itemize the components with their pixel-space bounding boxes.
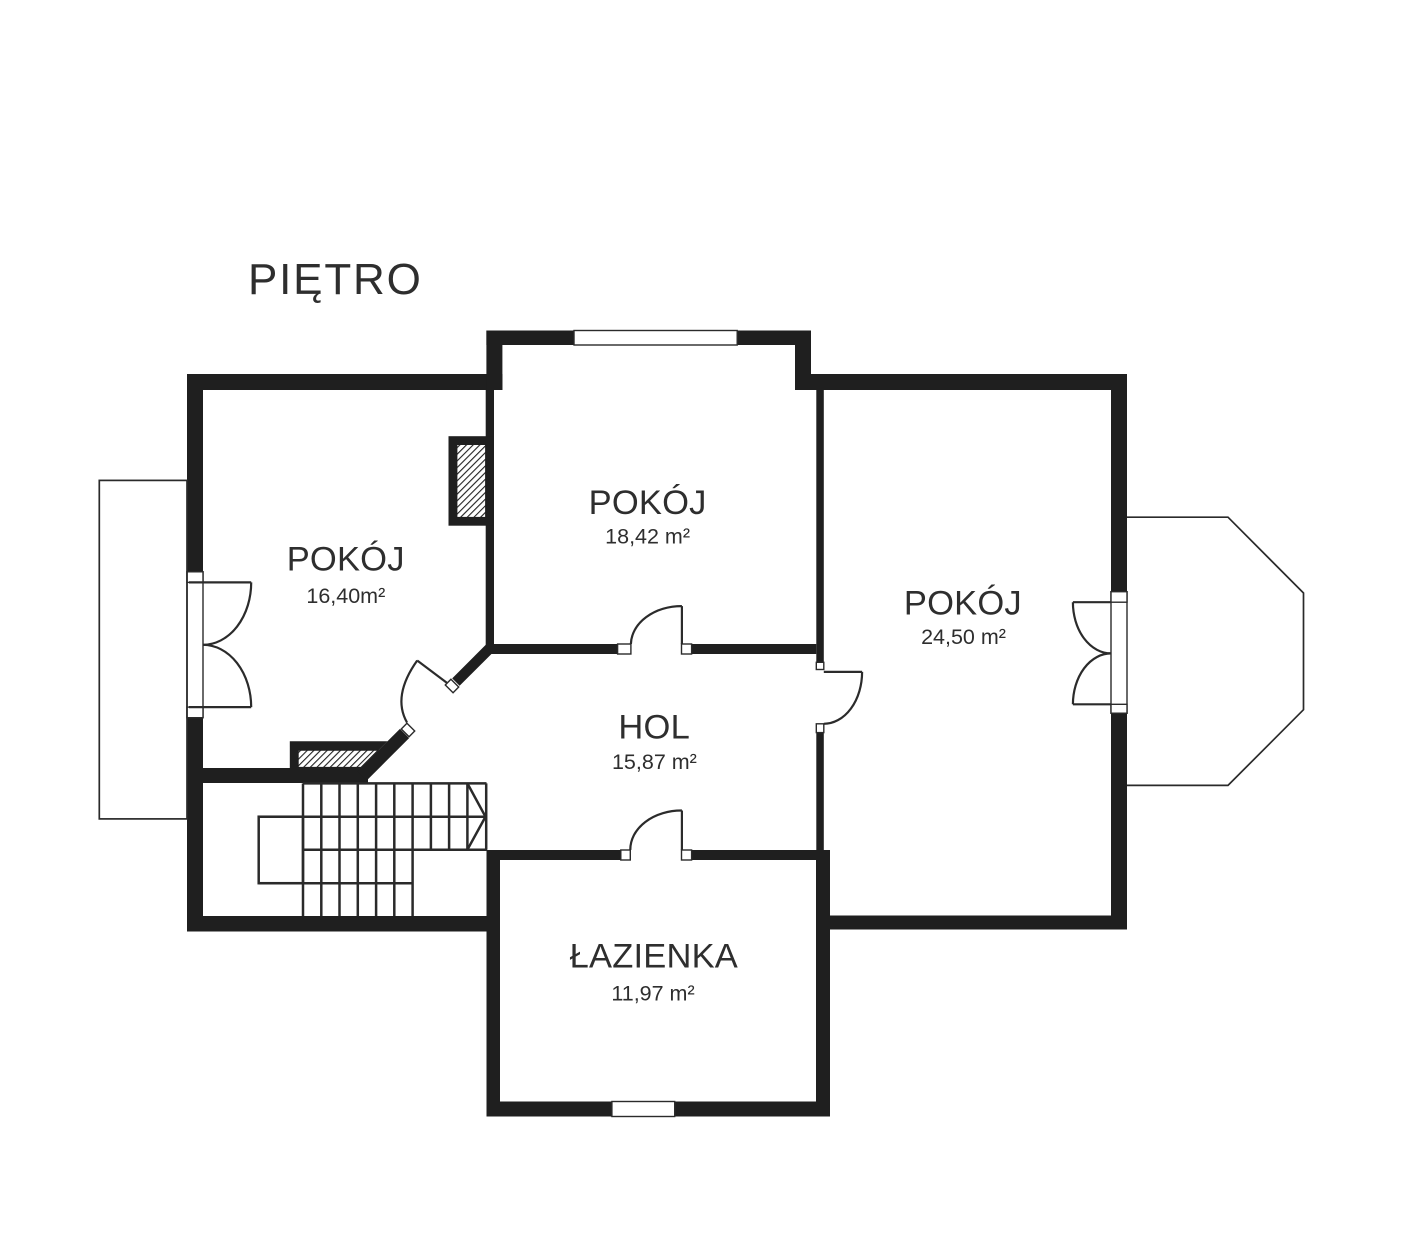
- svg-text:15,87 m²: 15,87 m²: [612, 750, 697, 774]
- svg-text:HOL: HOL: [618, 709, 690, 747]
- svg-text:PIĘTRO: PIĘTRO: [248, 255, 423, 304]
- svg-text:POKÓJ: POKÓJ: [287, 540, 405, 579]
- svg-text:POKÓJ: POKÓJ: [904, 584, 1022, 623]
- svg-text:POKÓJ: POKÓJ: [589, 483, 707, 522]
- svg-text:16,40m²: 16,40m²: [306, 584, 385, 608]
- svg-text:11,97 m²: 11,97 m²: [611, 982, 694, 1006]
- svg-text:18,42 m²: 18,42 m²: [605, 525, 690, 549]
- svg-text:ŁAZIENKA: ŁAZIENKA: [570, 938, 738, 976]
- svg-text:24,50 m²: 24,50 m²: [921, 625, 1006, 649]
